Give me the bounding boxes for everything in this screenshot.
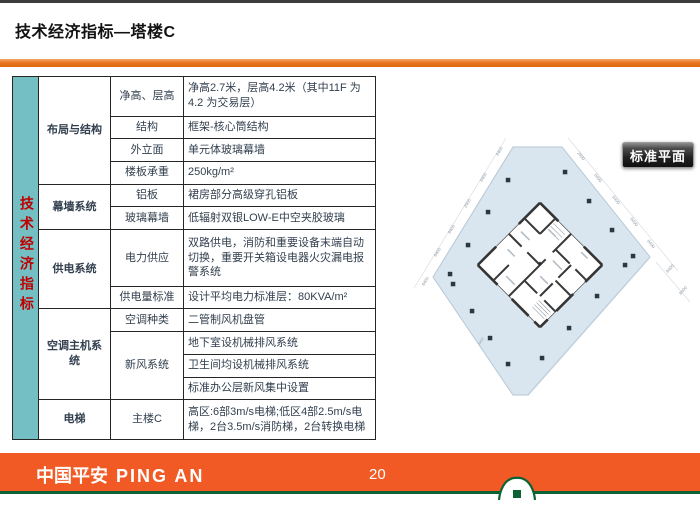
svg-text:8400: 8400	[593, 173, 603, 184]
value-cell: 裙房部分高级穿孔铝板	[184, 184, 376, 207]
category-cell: 供电系统	[39, 230, 111, 309]
table-row: 空调主机系统空调种类二管制风机盘管	[13, 309, 376, 332]
subcategory-cell: 电力供应	[111, 230, 184, 287]
spec-table: 技术经济指标布局与结构净高、层高净高2.7米，层高4.2米（其中11F 为4.2…	[12, 76, 376, 440]
subcategory-cell: 楼板承重	[111, 162, 184, 185]
svg-text:2500: 2500	[463, 197, 473, 208]
value-cell: 250kg/m²	[184, 162, 376, 185]
value-cell: 设计平均电力标准层：80KVA/m²	[184, 286, 376, 309]
value-cell: 单元体玻璃幕墙	[184, 139, 376, 162]
pingan-logo: 中国平安PING AN	[36, 462, 204, 488]
subcategory-cell: 结构	[111, 116, 184, 139]
title-divider	[0, 59, 700, 67]
pingan-logo-english: PING AN	[116, 466, 204, 486]
subcategory-cell: 供电量标准	[111, 286, 184, 309]
svg-text:8400: 8400	[479, 171, 489, 182]
floor-plan-diagram: 8400 8400 2500 8400 8400 8400 2500 8400 …	[385, 85, 695, 415]
subcategory-cell: 空调种类	[111, 309, 184, 332]
value-cell: 净高2.7米，层高4.2米（其中11F 为4.2 为交易层）	[184, 77, 376, 117]
pingan-logo-chinese: 中国平安	[36, 466, 108, 486]
svg-text:8400: 8400	[629, 217, 639, 228]
table-row: 幕墙系统铝板裙房部分高级穿孔铝板	[13, 184, 376, 207]
category-cell: 布局与结构	[39, 77, 111, 185]
subcategory-cell: 外立面	[111, 139, 184, 162]
value-cell: 高区:6部3m/s电梯;低区4部2.5m/s电梯，2台3.5m/s消防梯，2台转…	[184, 400, 376, 440]
arch-pavilion-icon	[495, 476, 539, 500]
svg-text:8400: 8400	[421, 275, 431, 286]
svg-text:8400: 8400	[447, 223, 457, 234]
table-row: 供电系统电力供应双路供电，消防和重要设备末端自动切换，重要开关箱设电器火灾漏电报…	[13, 230, 376, 287]
value-cell: 二管制风机盘管	[184, 309, 376, 332]
subcategory-cell: 净高、层高	[111, 77, 184, 117]
svg-text:2500: 2500	[576, 151, 586, 162]
table-row: 电梯主楼C高区:6部3m/s电梯;低区4部2.5m/s电梯，2台3.5m/s消防…	[13, 400, 376, 440]
value-cell: 卫生间均设机械排风系统	[184, 354, 376, 377]
subcategory-cell: 玻璃幕墙	[111, 207, 184, 230]
value-cell: 地下室设机械排风系统	[184, 332, 376, 355]
subcategory-cell: 新风系统	[111, 332, 184, 400]
value-cell: 标准办公层新风集中设置	[184, 377, 376, 400]
svg-text:8400: 8400	[665, 263, 675, 274]
value-cell: 双路供电，消防和重要设备末端自动切换，重要开关箱设电器火灾漏电报警系统	[184, 230, 376, 287]
slide-top-border	[0, 0, 700, 3]
value-cell: 低辐射双银LOW-E中空夹胶玻璃	[184, 207, 376, 230]
sidebar-vertical-header: 技术经济指标	[13, 77, 39, 440]
table-row: 技术经济指标布局与结构净高、层高净高2.7米，层高4.2米（其中11F 为4.2…	[13, 77, 376, 117]
subcategory-cell: 主楼C	[111, 400, 184, 440]
svg-text:8400: 8400	[495, 145, 505, 156]
svg-text:8400: 8400	[611, 195, 621, 206]
category-cell: 电梯	[39, 400, 111, 440]
footer-green-line	[0, 491, 700, 494]
category-cell: 幕墙系统	[39, 184, 111, 229]
svg-text:8400: 8400	[646, 239, 656, 250]
page-number: 20	[369, 466, 386, 483]
page-title: 技术经济指标—塔楼C	[15, 18, 176, 42]
value-cell: 框架-核心筒结构	[184, 116, 376, 139]
svg-text:8400: 8400	[433, 246, 443, 257]
sidebar-vertical-label: 技术经济指标	[17, 196, 36, 316]
subcategory-cell: 铝板	[111, 184, 184, 207]
standard-plan-button[interactable]: 标准平面	[622, 142, 694, 168]
category-cell: 空调主机系统	[39, 309, 111, 400]
